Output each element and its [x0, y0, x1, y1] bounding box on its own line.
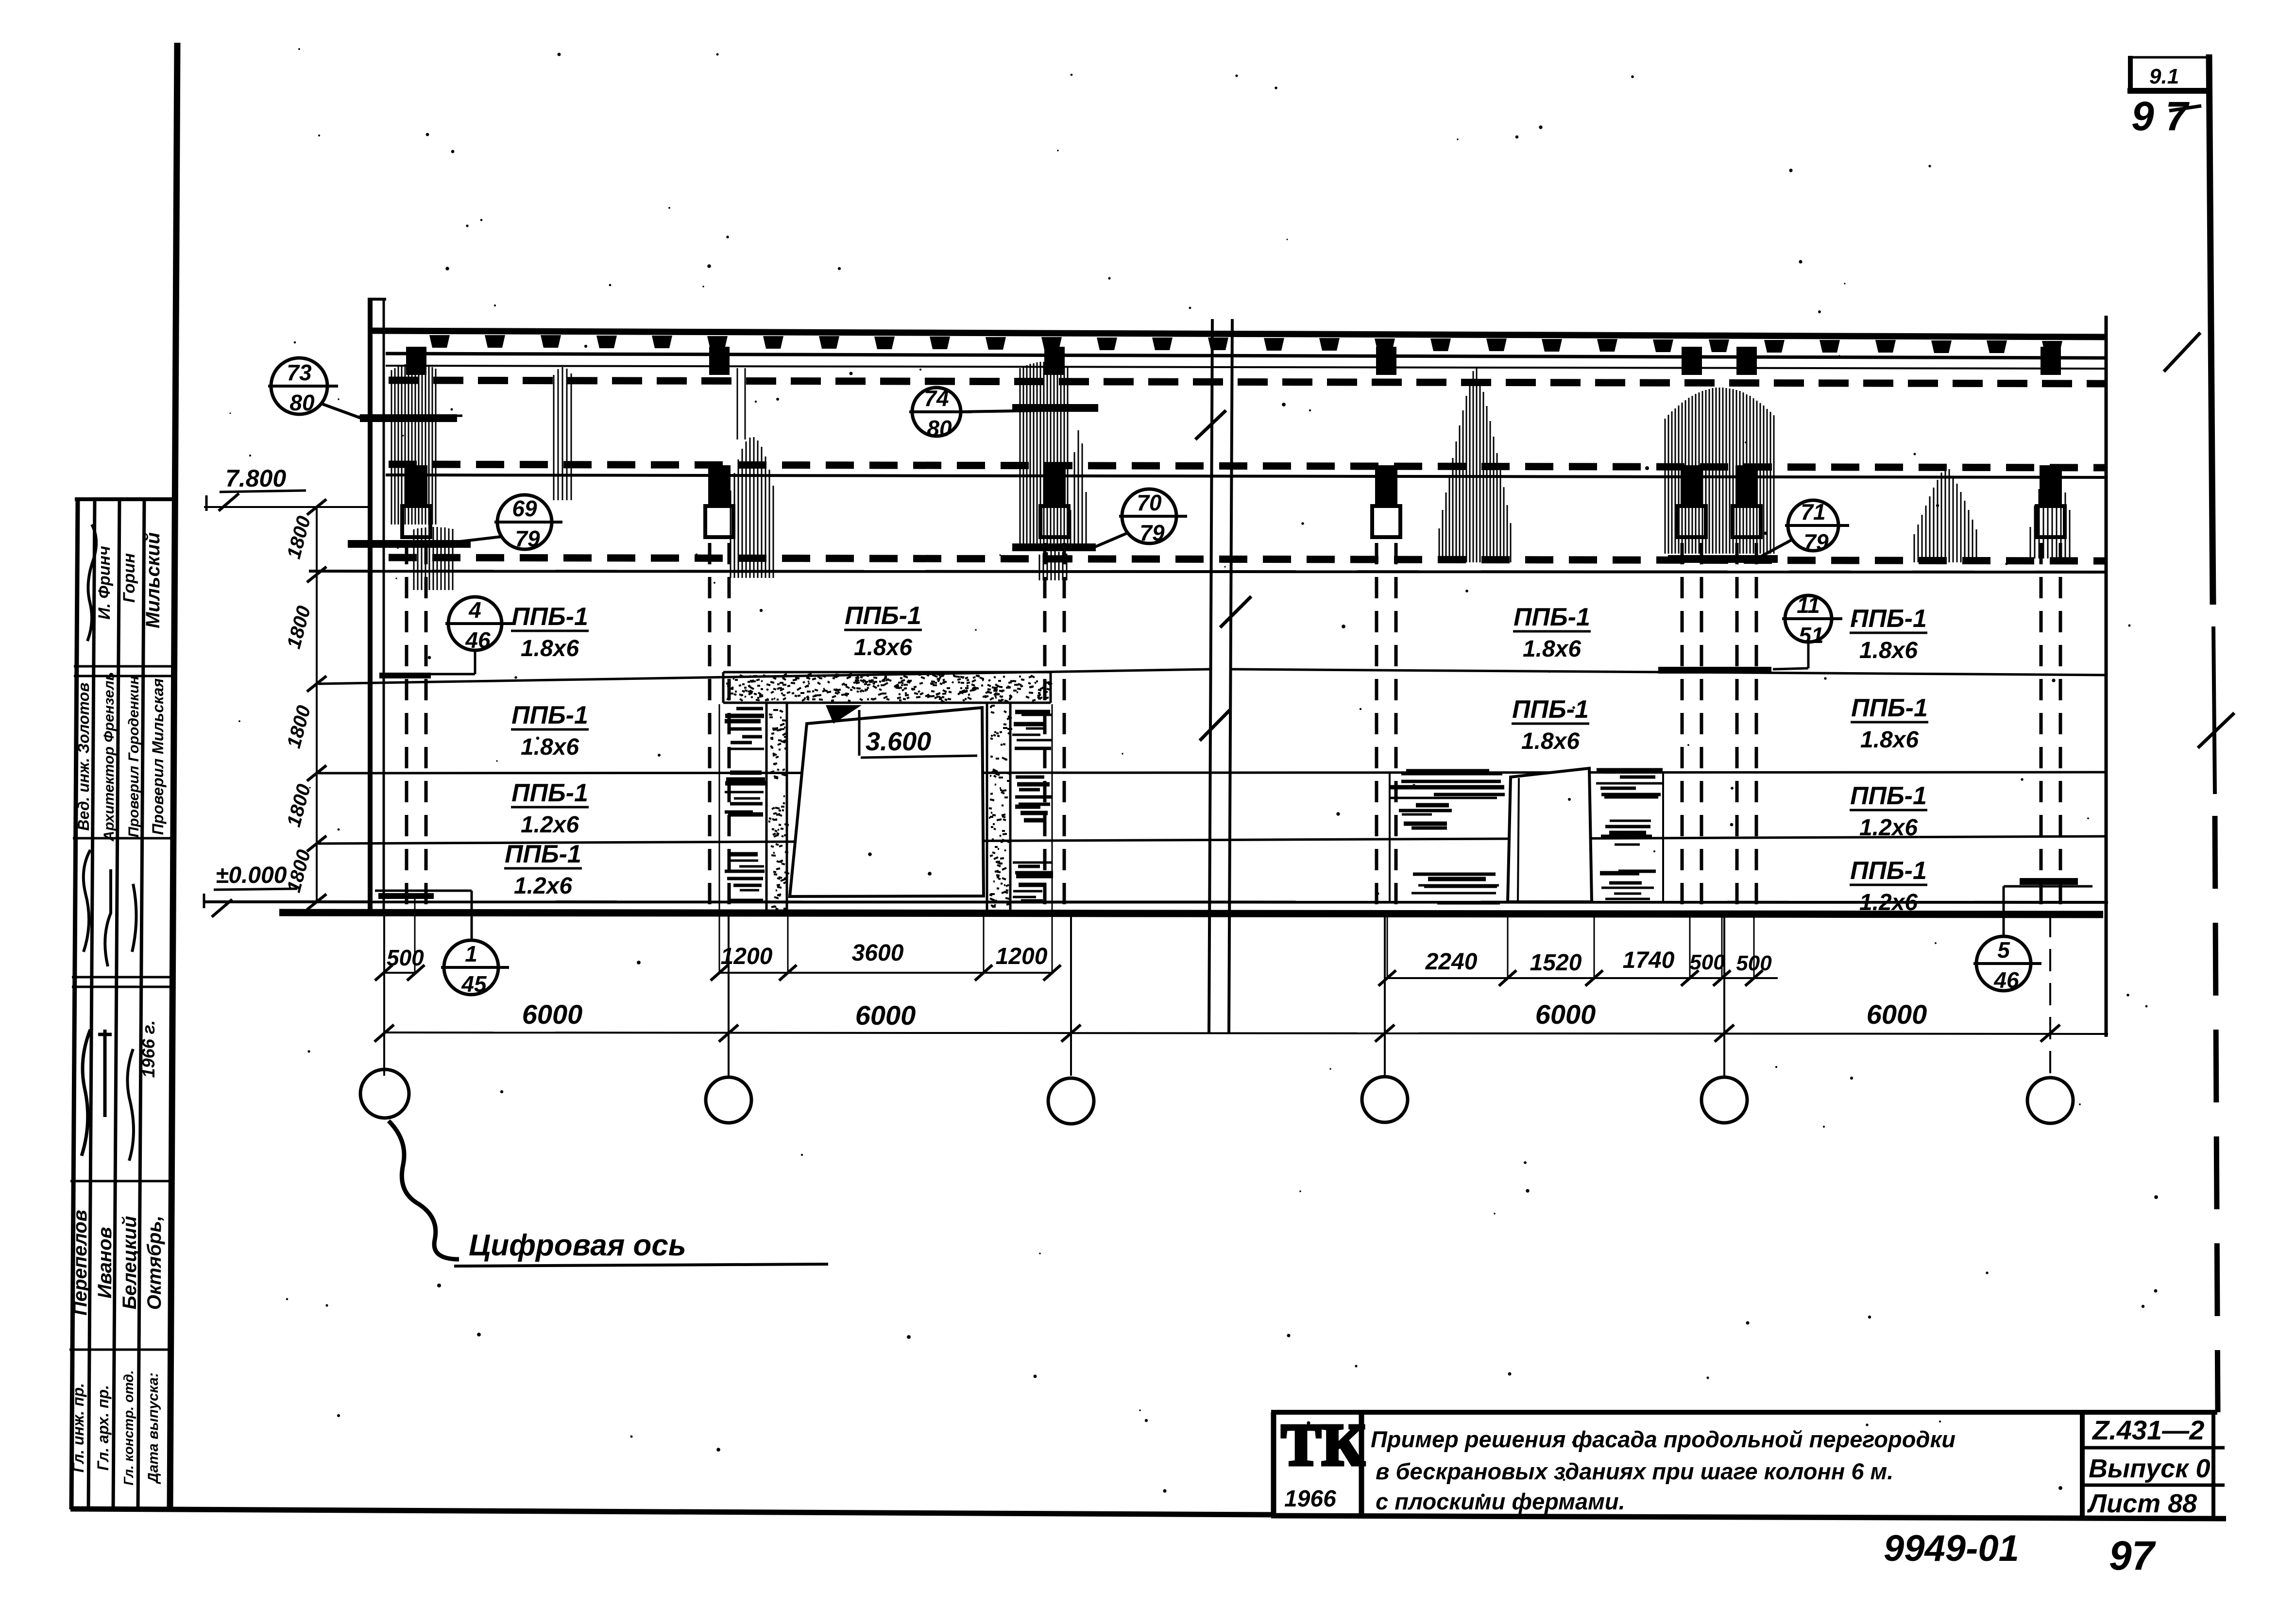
svg-text:Октябрь,: Октябрь, — [144, 1216, 165, 1310]
svg-text:Вед. инж. Золотов: Вед. инж. Золотов — [75, 682, 92, 830]
svg-text:ППБ-1: ППБ-1 — [505, 840, 581, 868]
svg-text:6000: 6000 — [1867, 999, 1927, 1030]
svg-text:Проверил Городенкин: Проверил Городенкин — [126, 676, 142, 838]
svg-text:Белецкий: Белецкий — [119, 1216, 140, 1310]
svg-text:1200: 1200 — [996, 944, 1048, 969]
svg-text:97: 97 — [2109, 1533, 2156, 1578]
svg-text:1.2х6: 1.2х6 — [1859, 815, 1918, 841]
svg-text:71: 71 — [1801, 499, 1825, 524]
svg-text:500: 500 — [387, 945, 424, 970]
svg-text:1: 1 — [465, 941, 477, 966]
svg-text:Цифровая ось: Цифровая ось — [469, 1229, 686, 1262]
svg-text:ППБ-1: ППБ-1 — [1850, 857, 1927, 885]
svg-text:ППБ-1: ППБ-1 — [1851, 694, 1928, 722]
svg-text:Проверил Мильская: Проверил Мильская — [149, 678, 167, 835]
svg-text:1.2х6: 1.2х6 — [521, 812, 579, 838]
svg-text:3.600: 3.600 — [866, 727, 931, 756]
svg-text:1.8х6: 1.8х6 — [521, 734, 579, 760]
svg-text:9949-01: 9949-01 — [1884, 1528, 2019, 1569]
svg-text:79: 79 — [515, 526, 540, 551]
svg-text:Гл. арх. пр.: Гл. арх. пр. — [94, 1385, 112, 1471]
svg-text:11: 11 — [1797, 592, 1820, 618]
svg-text:в бескрановых зданиях при шаге: в бескрановых зданиях при шаге колонн 6 … — [1376, 1458, 1893, 1484]
svg-text:80: 80 — [289, 390, 315, 415]
svg-text:ППБ-1: ППБ-1 — [511, 701, 588, 729]
svg-text:Выпуск 0: Выпуск 0 — [2089, 1454, 2211, 1483]
svg-text:И. Фринч: И. Фринч — [95, 546, 114, 620]
svg-text:1520: 1520 — [1530, 950, 1582, 976]
svg-text:Лист 88: Лист 88 — [2087, 1489, 2197, 1518]
svg-text:1966 г.: 1966 г. — [138, 1020, 158, 1078]
svg-text:7.800: 7.800 — [225, 465, 286, 492]
svg-text:4: 4 — [468, 597, 481, 623]
svg-text:ППБ-1: ППБ-1 — [1850, 782, 1927, 810]
svg-text:46: 46 — [465, 627, 491, 653]
svg-text:74: 74 — [924, 386, 949, 411]
svg-text:ППБ-1: ППБ-1 — [845, 602, 921, 630]
svg-text:1.8х6: 1.8х6 — [521, 636, 579, 661]
svg-text:Дата выпуска:: Дата выпуска: — [145, 1372, 161, 1485]
svg-text:1.8х6: 1.8х6 — [1859, 638, 1918, 663]
svg-text:Пример решения фасада продольн: Пример решения фасада продольной перегор… — [1371, 1426, 1956, 1452]
svg-text:1.8х6: 1.8х6 — [854, 635, 912, 660]
svg-text:500: 500 — [1736, 951, 1772, 975]
svg-text:5: 5 — [1997, 937, 2010, 963]
svg-text:1200: 1200 — [721, 944, 773, 969]
svg-text:9.1: 9.1 — [2149, 65, 2179, 88]
svg-text:Иванов: Иванов — [94, 1227, 116, 1298]
svg-text:51: 51 — [1799, 623, 1823, 648]
svg-text:Z.431—2: Z.431—2 — [2092, 1415, 2204, 1445]
svg-text:79: 79 — [1139, 520, 1165, 545]
svg-text:500: 500 — [1689, 950, 1725, 974]
svg-text:Гл. инж. пр.: Гл. инж. пр. — [69, 1383, 87, 1472]
svg-text:6000: 6000 — [1535, 999, 1596, 1030]
svg-text:с плоскими фермами.: с плоскими фермами. — [1376, 1489, 1625, 1514]
svg-text:1.2х6: 1.2х6 — [514, 873, 572, 899]
svg-text:Перепелов: Перепелов — [69, 1210, 91, 1316]
svg-text:±0.000: ±0.000 — [216, 863, 287, 888]
svg-text:Горин: Горин — [120, 553, 138, 603]
svg-text:ППБ-1: ППБ-1 — [1512, 695, 1589, 724]
svg-text:1.8х6: 1.8х6 — [1521, 728, 1580, 754]
svg-text:1740: 1740 — [1623, 947, 1675, 973]
svg-text:6000: 6000 — [855, 1000, 916, 1031]
svg-text:Гл. констр. отд.: Гл. констр. отд. — [121, 1370, 136, 1485]
svg-text:73: 73 — [287, 360, 312, 385]
svg-text:80: 80 — [927, 416, 952, 441]
svg-text:6000: 6000 — [522, 999, 583, 1030]
svg-text:45: 45 — [461, 971, 487, 997]
svg-text:1.2х6: 1.2х6 — [1859, 890, 1918, 915]
svg-text:1.8х6: 1.8х6 — [1860, 727, 1919, 753]
svg-text:ППБ-1: ППБ-1 — [1850, 605, 1927, 633]
svg-text:2240: 2240 — [1425, 949, 1478, 975]
svg-text:ТК: ТК — [1281, 1412, 1366, 1478]
svg-text:3600: 3600 — [852, 940, 904, 966]
svg-text:ППБ-1: ППБ-1 — [511, 603, 588, 631]
svg-text:ППБ-1: ППБ-1 — [1514, 603, 1590, 631]
svg-text:Мильский: Мильский — [142, 532, 164, 628]
svg-text:46: 46 — [1993, 967, 2019, 993]
svg-text:79: 79 — [1803, 529, 1829, 555]
svg-text:9 7: 9 7 — [2131, 93, 2190, 139]
svg-text:1966: 1966 — [1284, 1486, 1336, 1512]
svg-text:69: 69 — [512, 496, 537, 521]
svg-text:ППБ-1: ППБ-1 — [511, 779, 588, 807]
svg-text:Архитектор Френзель: Архитектор Френзель — [101, 672, 117, 842]
svg-text:70: 70 — [1137, 490, 1162, 515]
svg-text:1.8х6: 1.8х6 — [1523, 636, 1581, 662]
